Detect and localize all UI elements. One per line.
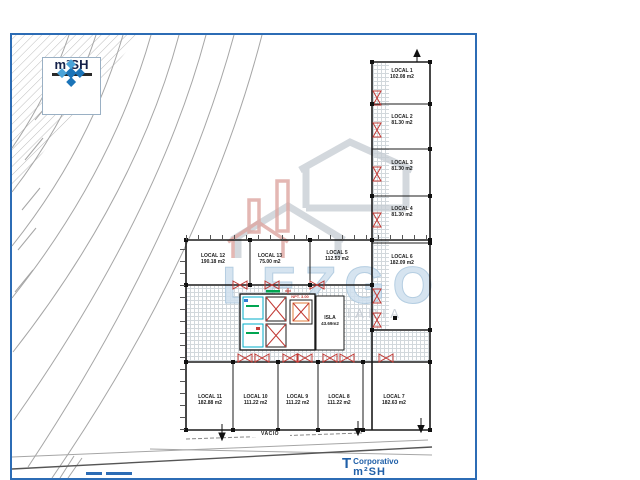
- local-10-label: LOCAL 10 111.22 m2: [233, 394, 278, 406]
- msh-logo-box: m²SH: [42, 57, 101, 115]
- dimension-ticks-top: [186, 235, 430, 240]
- corporativo-t-logo: T: [342, 457, 351, 478]
- local-1-label: LOCAL 1 102.08 m2: [374, 68, 430, 80]
- titleblock-line2: m²SH: [353, 466, 398, 478]
- local-11-label: LOCAL 11 182.88 m2: [187, 394, 233, 406]
- local-12-label: LOCAL 12 190.18 m2: [189, 253, 237, 265]
- local-13-label: LOCAL 13 75.00 m2: [246, 253, 294, 265]
- footer-left-mark: [86, 472, 102, 475]
- local-5-label: LOCAL 5 112.53 m2: [313, 250, 361, 262]
- local-8-label: LOCAL 8 111.22 m2: [317, 394, 361, 406]
- local-2-label: LOCAL 2 81.30 m2: [374, 114, 430, 126]
- plan-sheet: LEZGO INMOBILIARIA: [0, 0, 640, 480]
- local-7-label: LOCAL 7 182.63 m2: [366, 394, 422, 406]
- dimension-ticks-left: [180, 240, 185, 430]
- local-4-label: LOCAL 4 81.30 m2: [374, 206, 430, 218]
- titleblock-company: T Corporativo m²SH: [342, 457, 399, 478]
- local-3-label: LOCAL 3 81.30 m2: [374, 160, 430, 172]
- local-9-label: LOCAL 9 111.22 m2: [277, 394, 318, 406]
- msh-cross-icon: [43, 58, 100, 88]
- isla-label: ISLA 43.69m2: [314, 315, 346, 327]
- vacio-label: VACIO: [250, 431, 290, 437]
- local-6-label: LOCAL 6 182.09 m2: [374, 254, 430, 266]
- footer-left-mark: [106, 472, 132, 475]
- npt-level-label: NPT. 3.00: [282, 294, 318, 300]
- titleblock-line1: Corporativo: [353, 457, 398, 466]
